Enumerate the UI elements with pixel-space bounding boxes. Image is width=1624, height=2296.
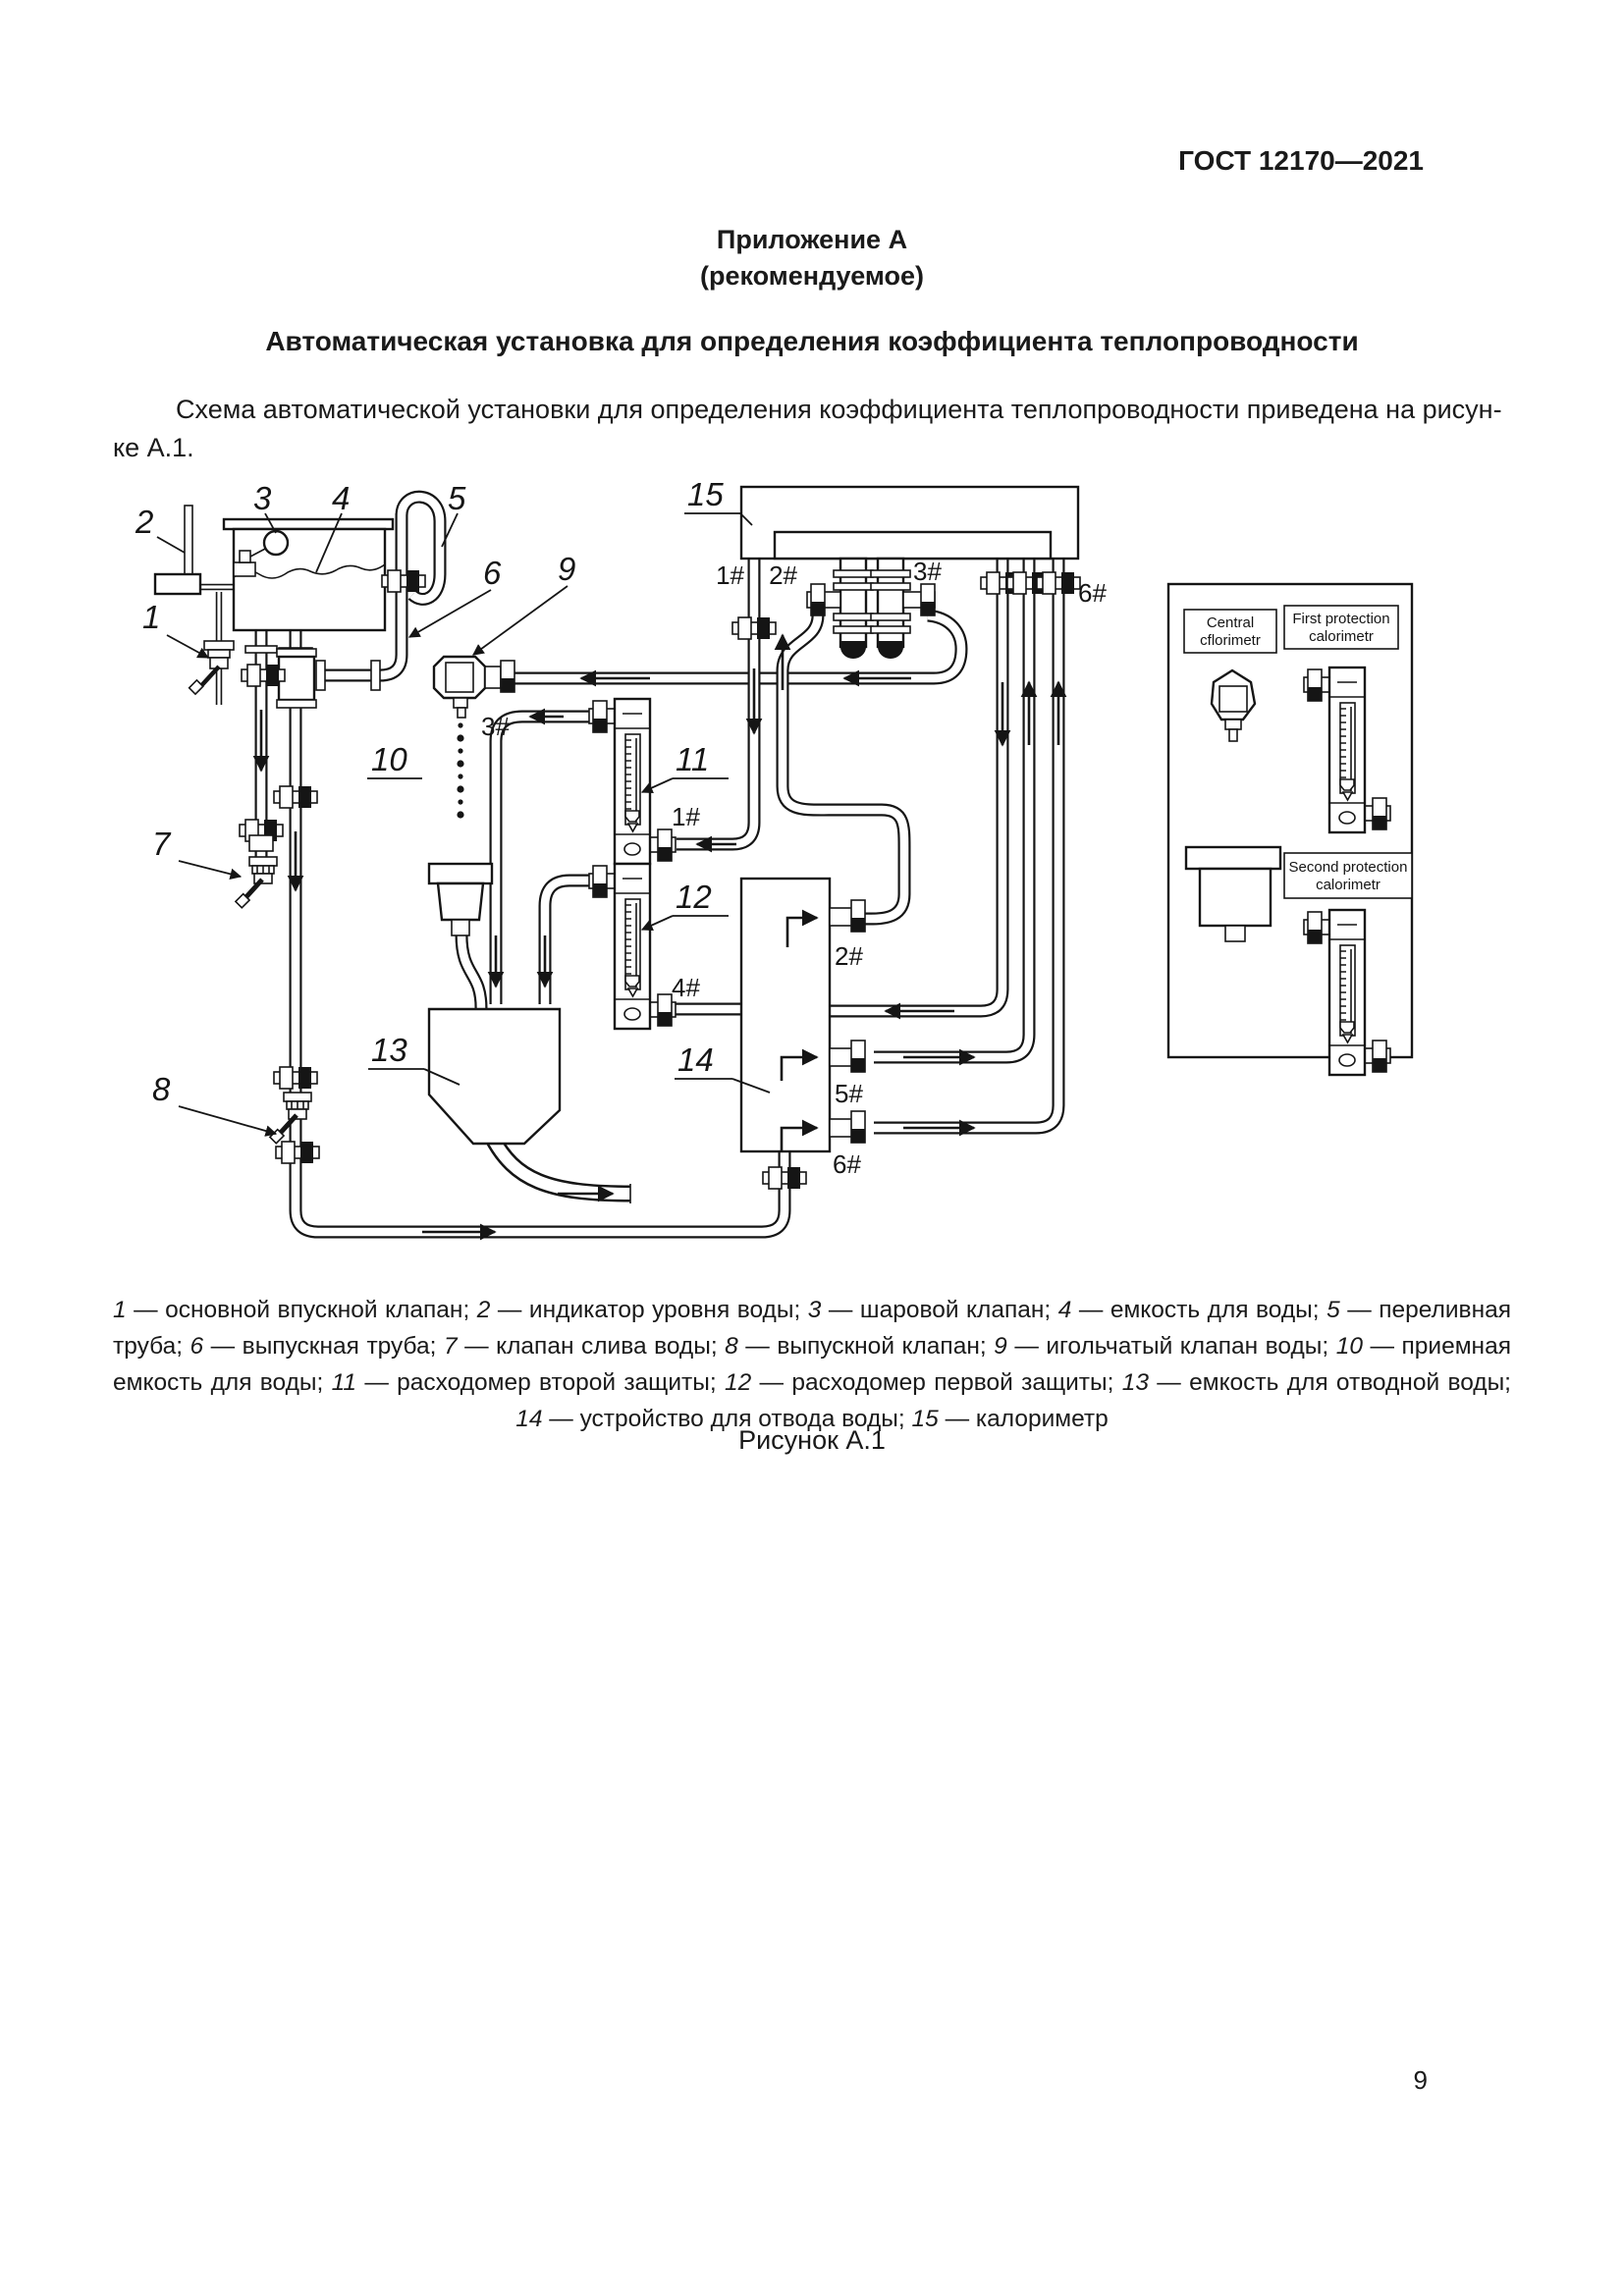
- port-tag-cal-2: 2#: [769, 561, 797, 590]
- part-label-2: 2: [135, 504, 153, 540]
- document-page: ГОСТ 12170—2021 Приложение А (рекомендуе…: [0, 0, 1624, 2296]
- part-label-13: 13: [371, 1032, 407, 1068]
- part-label-10: 10: [371, 741, 407, 777]
- page-title: Автоматическая установка для определения…: [0, 326, 1624, 357]
- receiving-vessel-10: [429, 864, 492, 935]
- appendix-line1: Приложение А: [0, 222, 1624, 258]
- part-label-7: 7: [152, 826, 172, 862]
- document-header: ГОСТ 12170—2021: [0, 145, 1424, 177]
- legend-central-line1: Central: [1207, 614, 1254, 631]
- flow-arrows: [261, 635, 1058, 1232]
- thermometer-2: [834, 559, 873, 659]
- legend-second-line1: Second protection: [1289, 859, 1408, 876]
- port-tag-fm12-4: 4#: [672, 973, 700, 1002]
- figure-number: Рисунок А.1: [0, 1425, 1624, 1456]
- part-label-8: 8: [152, 1071, 171, 1107]
- port-tag-dev14-2: 2#: [835, 941, 863, 971]
- port-tag-needle-3: 3#: [481, 712, 510, 741]
- part-label-14: 14: [677, 1041, 714, 1078]
- port-tag-dev14-5: 5#: [835, 1079, 863, 1108]
- part-label-5: 5: [448, 480, 466, 516]
- appendix-heading: Приложение А (рекомендуемое): [0, 222, 1624, 294]
- figure-caption: 1 — основной впускной клапан; 2 — индика…: [113, 1292, 1511, 1437]
- intro-line1: Схема автоматической установки для опред…: [113, 391, 1511, 429]
- legend-first-line2: calorimetr: [1309, 628, 1374, 645]
- part-label-12: 12: [676, 879, 712, 915]
- legend-second-line2: calorimetr: [1316, 877, 1380, 893]
- inlet-valve-1: [189, 641, 234, 694]
- calorimeter-15: [741, 487, 1078, 559]
- thermometer-3: [871, 559, 910, 659]
- port-tag-cal-6: 6#: [1078, 578, 1107, 608]
- appendix-line2: (рекомендуемое): [0, 258, 1624, 294]
- port-tag-cal-1: 1#: [716, 561, 744, 590]
- port-tag-dev14-6: 6#: [833, 1149, 861, 1179]
- part-label-4: 4: [332, 480, 350, 516]
- flowmeter-11: [589, 699, 676, 864]
- drain-valve-7: [236, 857, 277, 908]
- part-label-3: 3: [253, 480, 272, 516]
- part-label-6: 6: [483, 555, 502, 591]
- flowmeter-12: [589, 864, 676, 1029]
- part-label-11: 11: [676, 741, 709, 777]
- water-tank: [224, 519, 393, 655]
- legend-first-line1: First protection: [1292, 611, 1389, 627]
- port-tag-fm11-1: 1#: [672, 802, 700, 831]
- part-label-9: 9: [558, 551, 575, 587]
- schematic-diagram: Central cflorimetr First protection calo…: [98, 447, 1526, 1291]
- water-drips: [457, 722, 463, 818]
- part-label-1: 1: [142, 599, 160, 635]
- port-tag-cal-3: 3#: [913, 557, 942, 586]
- legend-central-line2: cflorimetr: [1200, 632, 1261, 649]
- part-label-15: 15: [687, 476, 724, 512]
- ball-valve-icon: [264, 531, 288, 555]
- drain-tank-13: [429, 1009, 560, 1144]
- page-number: 9: [1414, 2065, 1428, 2096]
- legend-panel: Central cflorimetr First protection calo…: [1168, 584, 1412, 1075]
